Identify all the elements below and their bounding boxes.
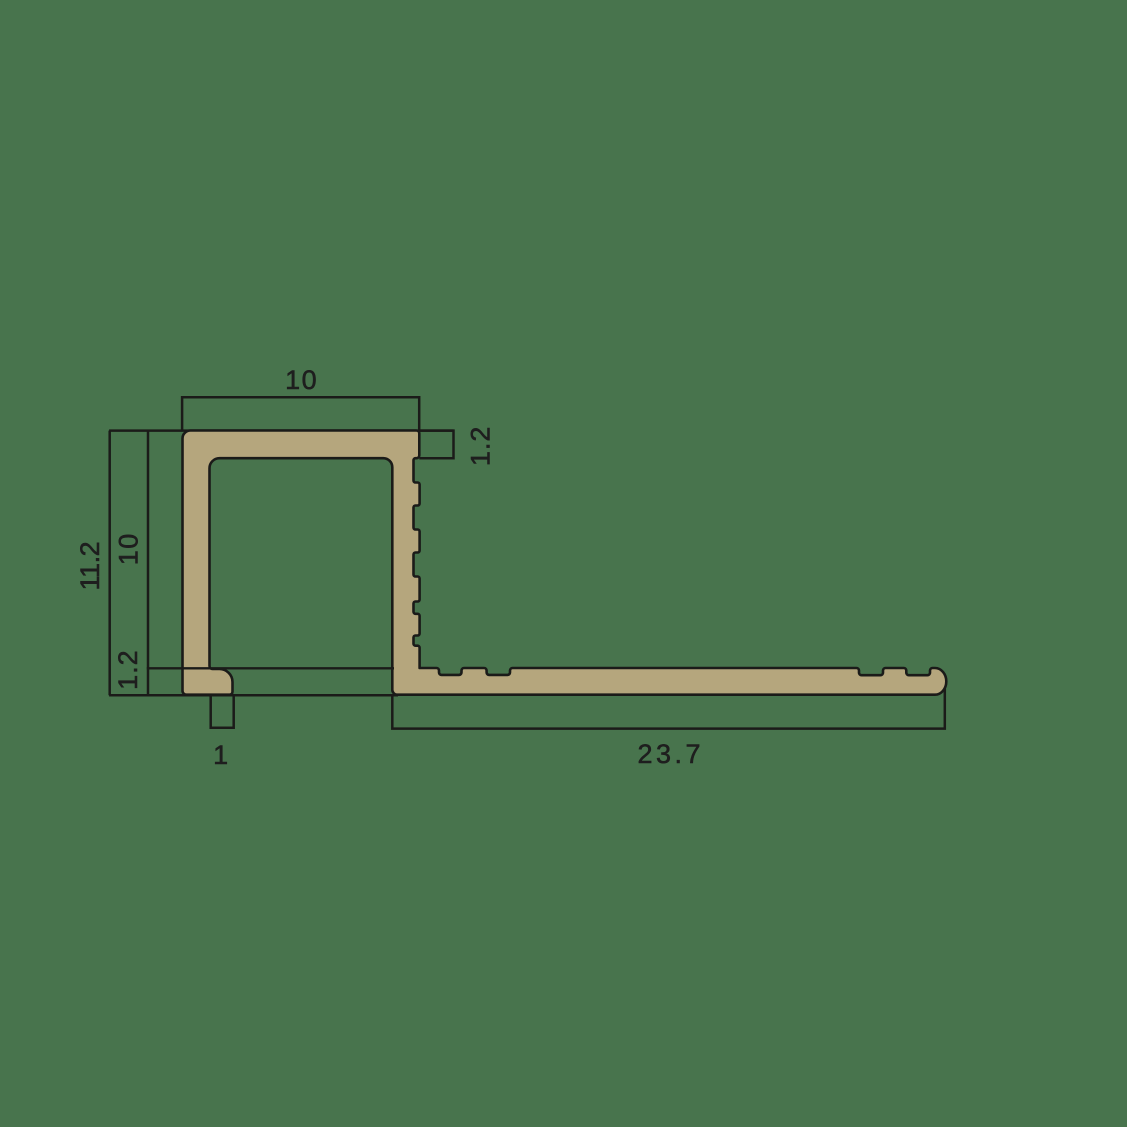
svg-text:1: 1 [213,740,228,770]
svg-text:10: 10 [285,365,318,395]
svg-text:23.7: 23.7 [638,739,705,769]
svg-text:1.2: 1.2 [465,426,495,467]
svg-text:10: 10 [114,532,144,565]
svg-text:11.2: 11.2 [75,542,105,591]
svg-text:1.2: 1.2 [113,649,143,690]
